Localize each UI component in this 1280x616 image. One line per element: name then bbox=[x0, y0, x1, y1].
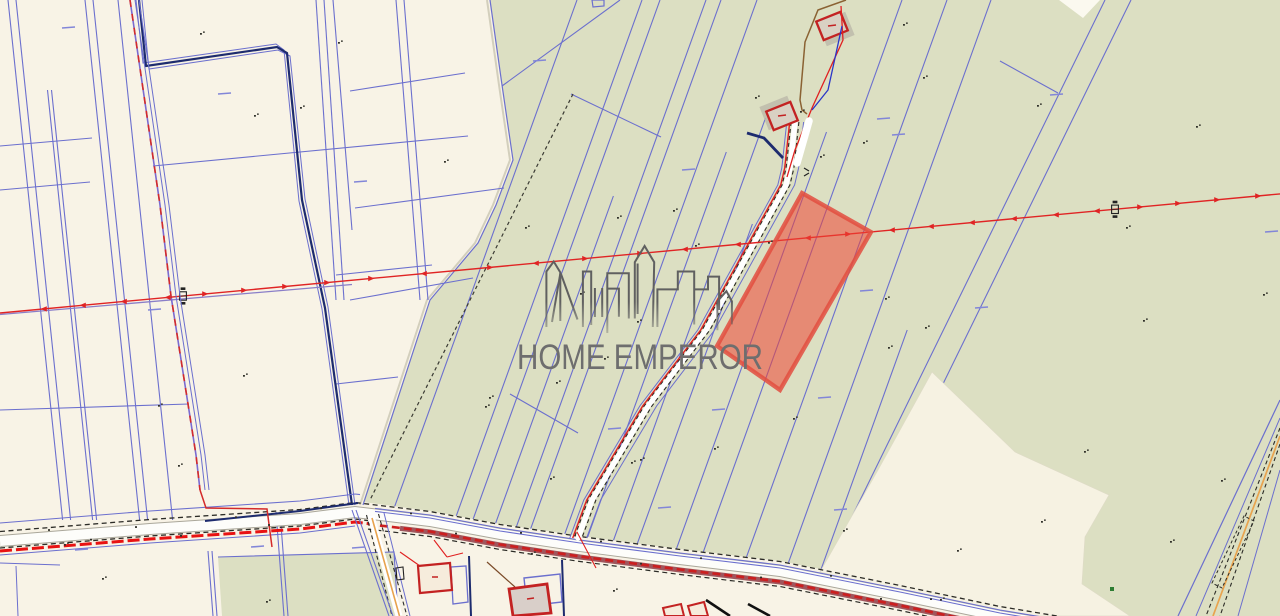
svg-text:HOME EMPEROR: HOME EMPEROR bbox=[517, 337, 763, 377]
